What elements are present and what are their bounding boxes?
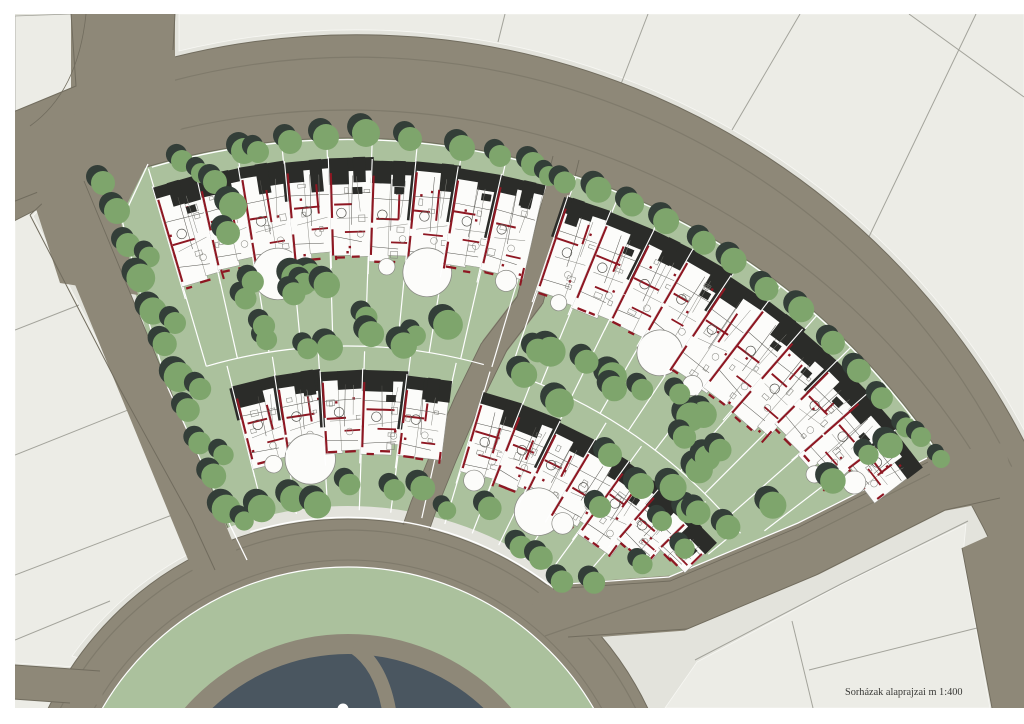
svg-text:Sorházak alaprajzai m 1:400: Sorházak alaprajzai m 1:400 — [845, 687, 963, 698]
